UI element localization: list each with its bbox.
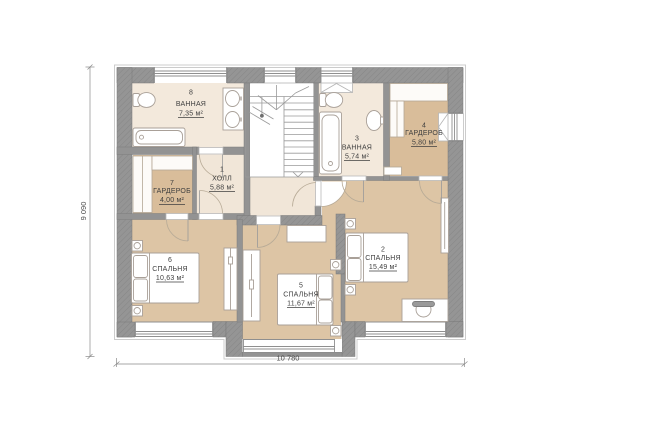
svg-text:10 780: 10 780	[277, 354, 300, 363]
svg-text:4,00 м²: 4,00 м²	[160, 197, 185, 204]
svg-text:СПАЛЬНЯ: СПАЛЬНЯ	[283, 292, 319, 299]
svg-text:2: 2	[381, 247, 385, 254]
svg-text:5: 5	[299, 283, 303, 290]
svg-text:ГАРДЕРОБ: ГАРДЕРОБ	[153, 188, 191, 195]
svg-text:15,49 м²: 15,49 м²	[369, 264, 398, 271]
svg-text:СПАЛЬНЯ: СПАЛЬНЯ	[152, 266, 188, 273]
svg-text:5,74 м²: 5,74 м²	[345, 154, 370, 161]
svg-text:ХОЛЛ: ХОЛЛ	[212, 176, 232, 183]
svg-text:7: 7	[170, 180, 174, 187]
svg-text:3: 3	[355, 136, 359, 143]
svg-text:9 090: 9 090	[79, 202, 88, 221]
svg-text:ВАННАЯ: ВАННАЯ	[176, 101, 206, 108]
svg-text:6: 6	[168, 257, 172, 264]
svg-text:СПАЛЬНЯ: СПАЛЬНЯ	[365, 255, 401, 262]
svg-text:4: 4	[422, 123, 426, 130]
svg-text:8: 8	[189, 90, 193, 97]
svg-text:ГАРДЕРОБ: ГАРДЕРОБ	[405, 130, 443, 137]
svg-text:10,63 м²: 10,63 м²	[156, 275, 185, 282]
svg-text:ВАННАЯ: ВАННАЯ	[342, 145, 372, 152]
svg-text:5,88 м²: 5,88 м²	[210, 185, 235, 192]
svg-text:11,67 м²: 11,67 м²	[287, 301, 315, 308]
svg-text:5,80 м²: 5,80 м²	[412, 140, 437, 147]
svg-text:7,35 м²: 7,35 м²	[179, 111, 204, 118]
svg-text:1: 1	[220, 167, 224, 174]
